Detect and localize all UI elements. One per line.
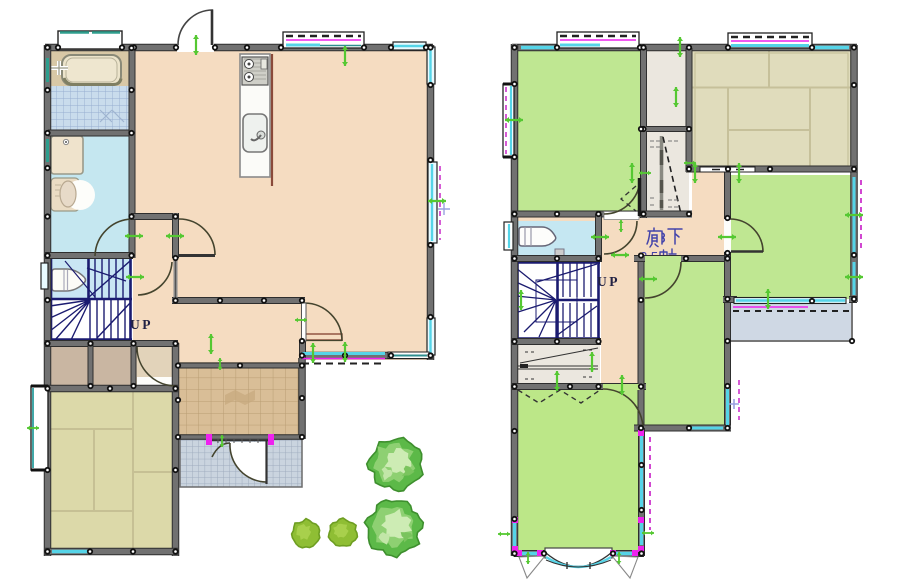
svg-text:UP: UP: [597, 274, 620, 289]
svg-text:UP: UP: [130, 317, 153, 332]
